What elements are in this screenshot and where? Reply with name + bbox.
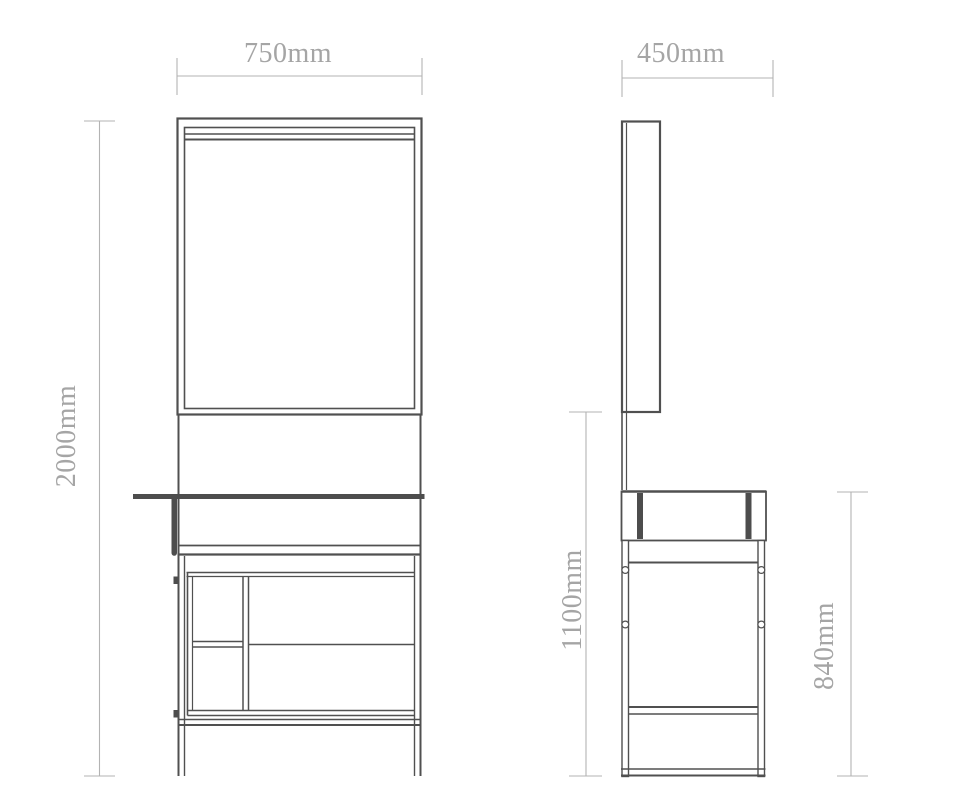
mirror-height-dimension: 1100mm: [557, 412, 602, 776]
height-dimension-label: 2000mm: [51, 385, 82, 488]
width-dimension: 750mm: [177, 38, 422, 95]
side-apron-back-rail-section: [746, 493, 752, 539]
front-leg-bolt-upper: [622, 567, 629, 574]
front-view: 750mm 2000mm: [51, 38, 425, 776]
technical-drawing-canvas: 750mm 2000mm: [0, 0, 970, 812]
mirror-height-dimension-label: 1100mm: [557, 549, 588, 651]
mirror-outer-frame: [178, 119, 422, 415]
side-view: 450mm: [557, 38, 868, 777]
front-leg-bolt-lower: [622, 621, 629, 628]
mirror-front: [178, 119, 422, 415]
width-dimension-label: 750mm: [244, 38, 332, 69]
back-leg-bolt-upper: [758, 567, 765, 574]
drawing-page: 750mm 2000mm: [0, 0, 970, 812]
side-apron-front-rail-section: [637, 493, 643, 539]
cabinet-side: [621, 492, 766, 777]
depth-dimension-label: 450mm: [637, 38, 725, 69]
side-apron-box: [622, 492, 767, 541]
mirror-side-panel: [622, 122, 660, 491]
tabletop-height-dimension-label: 840mm: [809, 602, 840, 690]
tabletop-front: [133, 494, 425, 499]
cabinet-front: [133, 415, 425, 777]
left-leg-peg-lower: [174, 710, 178, 718]
depth-dimension: 450mm: [622, 38, 773, 97]
side-front-leg: [622, 541, 629, 777]
side-back-leg: [758, 541, 765, 777]
tabletop-bracket: [172, 499, 178, 556]
mirror-panel-outline: [622, 122, 660, 413]
tabletop-height-dimension: 840mm: [809, 492, 868, 776]
mirror-inner-frame: [185, 128, 415, 409]
left-leg-peg-upper: [174, 577, 178, 585]
back-leg-bolt-lower: [758, 621, 765, 628]
height-dimension: 2000mm: [51, 121, 115, 776]
